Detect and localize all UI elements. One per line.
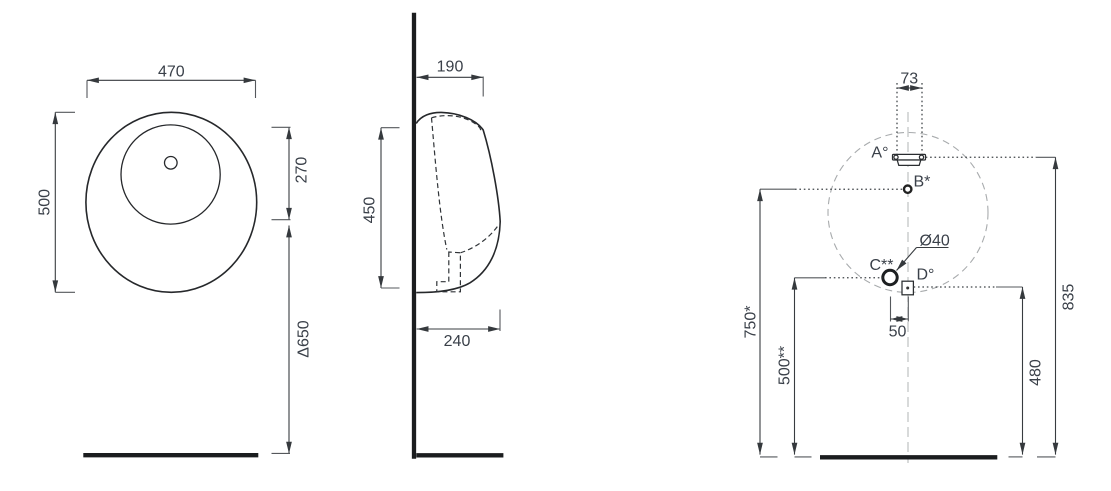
dimension-height-d: 480	[1009, 287, 1045, 457]
dimension-offset-cd: 50	[889, 297, 909, 341]
dimension-width: 470	[87, 64, 256, 99]
dim-height-b-label: 750*	[743, 306, 760, 339]
installation-view: 73 A° B* 750* C**	[743, 71, 1078, 464]
outlet-dot	[906, 287, 909, 290]
dimension-bottom-depth: 240	[417, 310, 500, 351]
dim-inner-height-label: 270	[294, 157, 311, 184]
dim-offset-label: 50	[889, 324, 907, 341]
drain-diameter-callout: Ø40	[897, 233, 950, 271]
outlet-point-d	[902, 281, 913, 295]
inlet-screw-left	[894, 155, 898, 159]
dim-mount-height-label: Δ650	[296, 320, 313, 357]
dimension-inlet-width: 73	[897, 71, 922, 154]
point-a-label: A°	[871, 145, 888, 162]
point-b-label: B*	[914, 174, 931, 191]
dimension-height: 500	[37, 112, 76, 292]
dim-width-label: 470	[158, 64, 185, 81]
urinal-profile	[416, 112, 500, 292]
inlet-base	[897, 160, 921, 165]
drawing-canvas: 470 500 270 Δ650	[0, 0, 1111, 491]
water-inlet-bracket	[893, 154, 926, 165]
side-view: 190 450 240	[362, 13, 504, 459]
dimension-top-depth: 190	[417, 59, 484, 97]
dimension-inner-height: 270	[272, 127, 311, 219]
dim-body-height-label: 450	[362, 197, 379, 224]
dim-top-depth-label: 190	[437, 59, 464, 76]
inlet-hole	[165, 157, 178, 170]
inlet-screw-right	[919, 155, 923, 159]
front-view: 470 500 270 Δ650	[37, 64, 313, 456]
dim-height-total-label: 835	[1061, 284, 1078, 311]
dimension-height-total: 835	[1037, 157, 1078, 457]
dim-bottom-depth-label: 240	[444, 333, 471, 350]
point-d-label: D°	[917, 267, 935, 284]
dimension-body-height: 450	[362, 128, 400, 288]
dim-height-c-label: 500**	[777, 346, 794, 385]
inner-bowl	[121, 125, 220, 224]
dim-height-d-label: 480	[1028, 359, 1045, 386]
fixing-point-b	[904, 186, 911, 193]
dimension-height-b: 750*	[743, 189, 778, 457]
point-c-label: C**	[869, 257, 893, 274]
dim-inlet-width-label: 73	[900, 71, 918, 88]
dim-height-label: 500	[37, 189, 54, 216]
dimension-height-c: 500**	[777, 278, 812, 457]
dimension-mount-height: Δ650	[272, 226, 313, 454]
